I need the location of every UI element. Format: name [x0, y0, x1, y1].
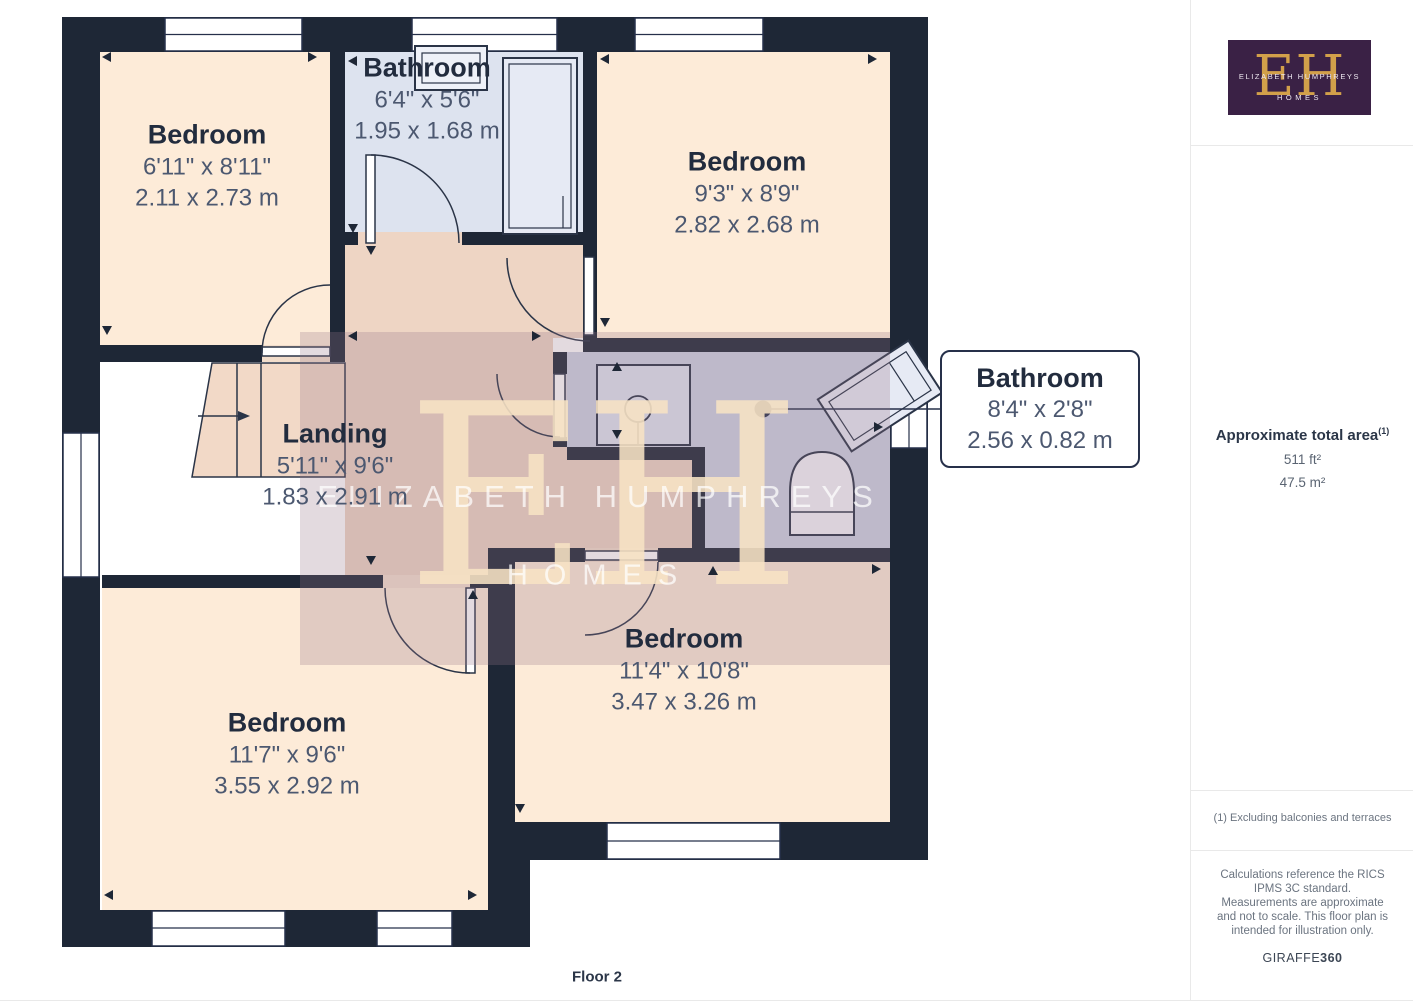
room-metric: 2.11 x 2.73 m [135, 183, 279, 214]
door-leaf [554, 374, 565, 438]
door-leaf [584, 257, 594, 335]
sidebar-divider [1191, 790, 1413, 791]
disclaimer-text: Calculations reference the RICS IPMS 3C … [1215, 868, 1390, 938]
room-imperial: 9'3" x 8'9" [674, 179, 819, 210]
toilet-fixture [790, 452, 854, 535]
floorplan-page: EH ELIZABETH HUMPHREYS HOMES Bedroom 6'1… [0, 0, 1413, 1001]
door-leaf [262, 347, 330, 356]
room-name: Bedroom [674, 146, 819, 179]
dimension-arrow-icon [102, 326, 112, 335]
room-name: Landing [262, 418, 407, 451]
room-name: Bedroom [214, 707, 359, 740]
room-imperial: 6'4" x 5'6" [354, 85, 499, 116]
room-metric: 2.82 x 2.68 m [674, 210, 819, 241]
shower-fixture [597, 365, 690, 445]
dimension-arrow-icon [872, 564, 881, 574]
room-name: Bathroom [354, 52, 499, 85]
room-metric: 3.47 x 3.26 m [611, 687, 756, 718]
area-title: Approximate total area(1) [1191, 426, 1413, 444]
window [607, 823, 780, 859]
room-name: Bedroom [135, 119, 279, 152]
dimension-arrow-icon [366, 246, 376, 255]
dimension-arrow-icon [612, 430, 622, 439]
door-leaf [366, 155, 375, 243]
dimension-arrow-icon [612, 362, 622, 371]
dimension-arrow-icon [366, 556, 376, 565]
floorplan-canvas: EH ELIZABETH HUMPHREYS HOMES Bedroom 6'1… [0, 0, 1190, 1000]
corridor-floor [345, 245, 583, 338]
window [63, 433, 99, 577]
area-title-superscript: (1) [1378, 426, 1389, 436]
dimension-arrow-icon [874, 422, 883, 432]
room-label-landing: Landing 5'11" x 9'6" 1.83 x 2.91 m [262, 418, 407, 513]
dimension-arrow-icon [868, 54, 877, 64]
room-imperial: 8'4" x 2'8" [988, 394, 1093, 425]
room-imperial: 6'11" x 8'11" [135, 152, 279, 183]
area-metric: 47.5 m² [1191, 475, 1413, 490]
sidebar-divider [1191, 850, 1413, 851]
dimension-arrow-icon [102, 52, 111, 62]
window [152, 911, 285, 946]
dimension-arrow-icon [308, 52, 317, 62]
dimension-arrow-icon [515, 804, 525, 813]
room-metric: 1.83 x 2.91 m [262, 482, 407, 513]
footnote: (1) Excluding balconies and terraces [1203, 812, 1402, 824]
room-metric: 1.95 x 1.68 m [354, 116, 499, 147]
leader-dot [755, 401, 772, 418]
logo-company-name: ELIZABETH HUMPHREYS [1228, 72, 1371, 81]
info-sidebar: EH ELIZABETH HUMPHREYS HOMES Approximate… [1190, 0, 1413, 1000]
room-label-bedroom-tr: Bedroom 9'3" x 8'9" 2.82 x 2.68 m [674, 146, 819, 241]
room-label-bedroom-br: Bedroom 11'4" x 10'8" 3.47 x 3.26 m [611, 623, 756, 718]
room-imperial: 5'11" x 9'6" [262, 451, 407, 482]
room-metric: 2.56 x 0.82 m [967, 425, 1112, 456]
window [635, 18, 763, 51]
company-logo: EH ELIZABETH HUMPHREYS HOMES [1228, 40, 1371, 115]
hall-floor [553, 445, 692, 548]
brand-text-bold: 360 [1320, 951, 1342, 965]
dimension-arrow-icon [348, 56, 357, 66]
room-metric: 3.55 x 2.92 m [214, 771, 359, 802]
sidebar-divider [1191, 145, 1413, 146]
dimension-arrow-icon [600, 54, 609, 64]
bathtub-fixture [503, 58, 577, 234]
room-imperial: 11'7" x 9'6" [214, 740, 359, 771]
area-imperial: 511 ft² [1191, 452, 1413, 467]
floor-label: Floor 2 [572, 969, 622, 986]
area-title-text: Approximate total area [1216, 427, 1379, 444]
logo-company-sub: HOMES [1228, 93, 1371, 102]
window [377, 911, 452, 946]
window [165, 18, 302, 51]
room-name: Bedroom [611, 623, 756, 656]
dimension-arrow-icon [708, 566, 718, 575]
room-label-bedroom-tl: Bedroom 6'11" x 8'11" 2.11 x 2.73 m [135, 119, 279, 214]
dimension-arrow-icon [600, 318, 610, 327]
room-name: Bathroom [976, 362, 1104, 394]
dimension-arrow-icon [468, 590, 478, 599]
dimension-arrow-icon [348, 224, 358, 233]
doorway-fill [383, 575, 470, 588]
dimension-arrow-icon [348, 331, 357, 341]
dimension-arrow-icon [532, 331, 541, 341]
door-leaf [585, 551, 658, 560]
dimension-arrow-icon [104, 890, 113, 900]
door-leaf [466, 588, 475, 673]
dimension-arrow-icon [468, 890, 477, 900]
room-label-bedroom-bl: Bedroom 11'7" x 9'6" 3.55 x 2.92 m [214, 707, 359, 802]
brand-text: GIRAFFE [1262, 951, 1320, 965]
bathroom-callout: Bathroom 8'4" x 2'8" 2.56 x 0.82 m [940, 350, 1140, 468]
room-imperial: 11'4" x 10'8" [611, 656, 756, 687]
giraffe360-brand: GIRAFFE360 [1191, 951, 1413, 965]
total-area-block: Approximate total area(1) 511 ft² 47.5 m… [1191, 426, 1413, 490]
room-label-bathroom-top: Bathroom 6'4" x 5'6" 1.95 x 1.68 m [354, 52, 499, 147]
